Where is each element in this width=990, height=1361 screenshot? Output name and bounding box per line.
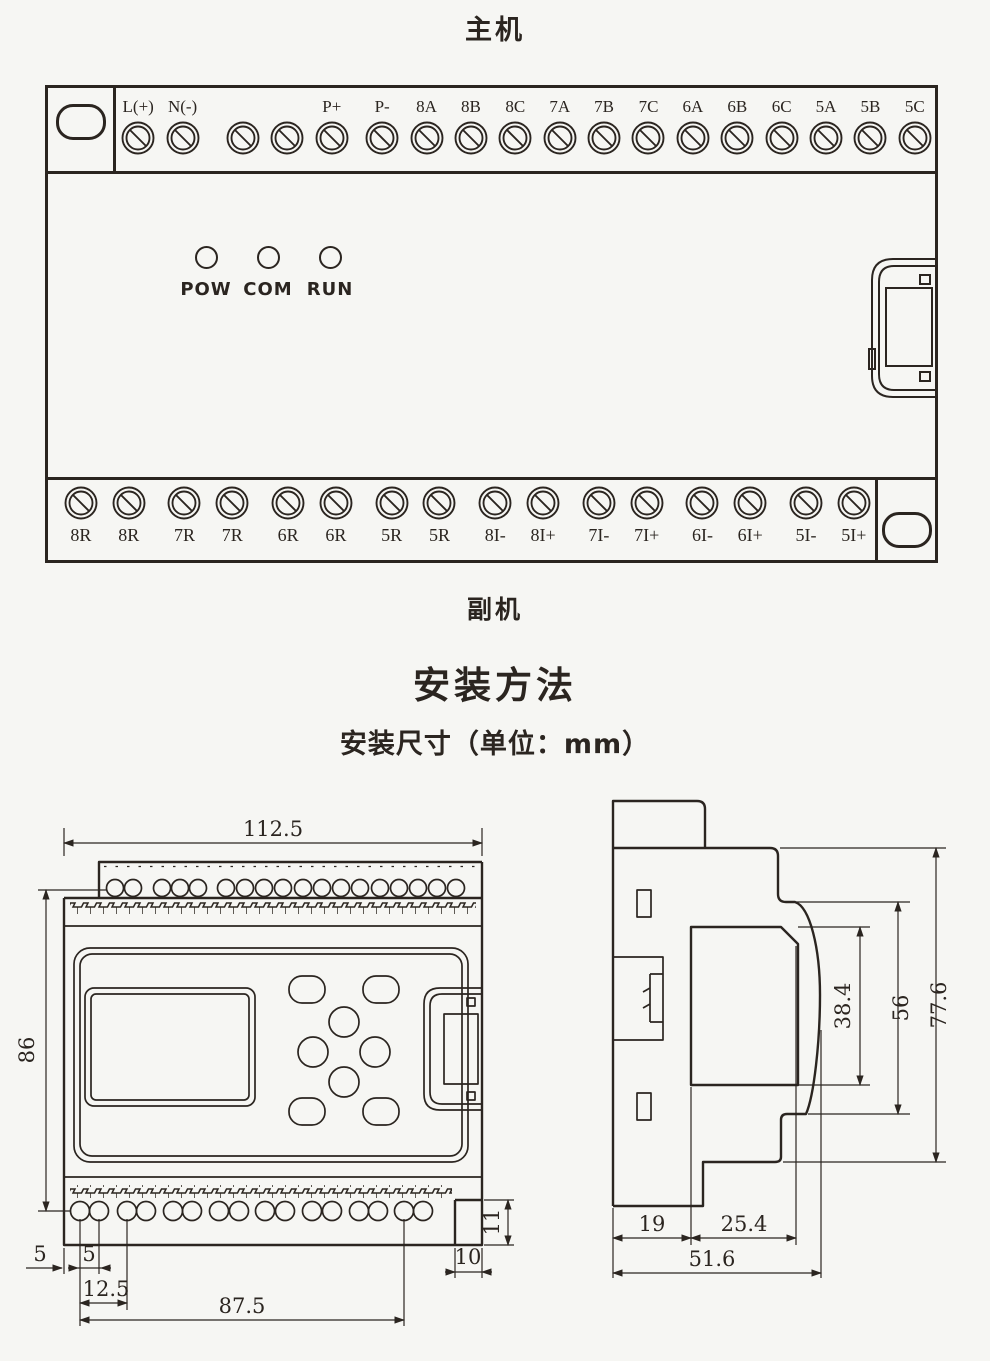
screw-terminal-icon: [318, 485, 354, 521]
led-pow-label: POW: [175, 279, 237, 300]
dim-notch-height: 11: [480, 1209, 504, 1236]
sub-unit-title: 副机: [0, 590, 990, 626]
terminal-top-6A: 6A: [671, 94, 715, 156]
bottom-terminal-strip: 8R8R7R7R6R6R5R5R8I-8I+7I-7I+6I-6I+5I-5I+: [48, 477, 935, 563]
terminal-label: 5A: [804, 94, 848, 120]
dim-hole-span: 87.5: [219, 1294, 266, 1318]
led-pow: POW: [175, 246, 237, 300]
screw-terminal-icon: [111, 485, 147, 521]
screw-terminal-icon: [542, 120, 578, 156]
terminal-label: 8I+: [519, 523, 567, 547]
top-terminal-row: L(+)N(-)P+P-8A8B8C7A7B7C6A6B6C5A5B5C: [116, 88, 935, 171]
terminal-label: P+: [310, 94, 354, 120]
terminal-bottom-8R: 8R: [57, 485, 105, 547]
terminal-bottom-6R: 6R: [264, 485, 312, 547]
screw-terminal-icon: [788, 485, 824, 521]
screw-terminal-icon: [732, 485, 768, 521]
terminal-label: 7B: [582, 94, 626, 120]
terminal-label: 6R: [312, 523, 360, 547]
terminal-label: 6B: [715, 94, 759, 120]
dim-hole-pitch: 5: [82, 1242, 95, 1266]
screw-terminal-icon: [852, 120, 888, 156]
screw-terminal-icon: [225, 120, 261, 156]
screw-terminal-icon: [675, 120, 711, 156]
screw-terminal-icon: [166, 485, 202, 521]
terminal-label: 8A: [404, 94, 448, 120]
terminal-label: 6A: [671, 94, 715, 120]
screw-terminal-icon: [630, 120, 666, 156]
terminal-bottom-5I-: 5I-: [782, 485, 830, 547]
screw-terminal-icon: [314, 120, 350, 156]
terminal-label: N(-): [160, 94, 204, 120]
led-run-icon: [319, 246, 342, 269]
terminal-bottom-8I+: 8I+: [519, 485, 567, 547]
terminal-label: 6I+: [726, 523, 774, 547]
screw-terminal-icon: [421, 485, 457, 521]
terminal-label: 5I-: [782, 523, 830, 547]
screw-terminal-icon: [214, 485, 250, 521]
screw-terminal-icon: [629, 485, 665, 521]
terminal-top-7B: 7B: [582, 94, 626, 156]
terminal-top-7C: 7C: [626, 94, 670, 156]
expansion-port-icon: [848, 254, 938, 402]
main-unit-title: 主机: [0, 8, 990, 47]
screw-terminal-icon: [764, 120, 800, 156]
terminal-bottom-7R: 7R: [208, 485, 256, 547]
terminal-top-L(+): L(+): [116, 94, 160, 156]
install-method-heading: 安装方法: [0, 655, 990, 709]
mounting-hole-top-left: [56, 104, 106, 140]
terminal-label: 5R: [416, 523, 464, 547]
terminal-bottom-7I+: 7I+: [623, 485, 671, 547]
terminal-top-8C: 8C: [493, 94, 537, 156]
screw-terminal-icon: [165, 120, 201, 156]
terminal-label: 6R: [264, 523, 312, 547]
terminal-bottom-5R: 5R: [368, 485, 416, 547]
terminal-label: 5C: [893, 94, 935, 120]
terminal-top-P+: P+: [310, 94, 354, 156]
terminal-label: 7I+: [623, 523, 671, 547]
screw-terminal-icon: [63, 485, 99, 521]
dim-overall-width: 112.5: [243, 817, 303, 841]
screw-terminal-icon: [120, 120, 156, 156]
terminal-label: 8C: [493, 94, 537, 120]
screw-terminal-icon: [453, 120, 489, 156]
screw-terminal-icon: [684, 485, 720, 521]
terminal-bottom-5I+: 5I+: [830, 485, 875, 547]
terminal-label: P-: [360, 94, 404, 120]
terminal-bottom-5R: 5R: [416, 485, 464, 547]
installation-drawings: 112.5 86: [0, 790, 990, 1355]
terminal-top-6B: 6B: [715, 94, 759, 156]
screw-terminal-icon: [269, 120, 305, 156]
screw-terminal-icon: [270, 485, 306, 521]
led-com-label: COM: [237, 279, 299, 300]
terminal-bottom-6I-: 6I-: [679, 485, 727, 547]
terminal-bottom-6R: 6R: [312, 485, 360, 547]
terminal-label: 5R: [368, 523, 416, 547]
screw-terminal-icon: [836, 485, 872, 521]
terminal-bottom-7I-: 7I-: [575, 485, 623, 547]
mounting-hole-bottom-right: [882, 512, 932, 548]
terminal-label: 5I+: [830, 523, 875, 547]
dim-body-height: 56: [889, 995, 913, 1022]
dim-front-depth: 25.4: [721, 1212, 768, 1236]
terminal-top-7A: 7A: [538, 94, 582, 156]
dim-window-height: 38.4: [831, 983, 855, 1030]
screw-terminal-icon: [719, 120, 755, 156]
terminal-label: [221, 94, 265, 120]
led-indicator-row: POW COM RUN: [175, 246, 361, 300]
screw-terminal-icon: [374, 485, 410, 521]
screw-terminal-icon: [586, 120, 622, 156]
side-view-drawing: 38.4 56 77.6 19 25.4 51.6: [598, 790, 990, 1310]
terminal-top-6C: 6C: [759, 94, 803, 156]
front-view-drawing: 112.5 86: [12, 798, 532, 1350]
terminal-top-N(-): N(-): [160, 94, 204, 156]
terminal-label: 8R: [57, 523, 105, 547]
terminal-label: 8B: [449, 94, 493, 120]
dim-hole-pitch-double: 12.5: [83, 1277, 130, 1301]
led-run: RUN: [299, 246, 361, 300]
terminal-label: 7R: [161, 523, 209, 547]
screw-terminal-icon: [808, 120, 844, 156]
led-pow-icon: [195, 246, 218, 269]
top-terminal-strip: L(+)N(-)P+P-8A8B8C7A7B7C6A6B6C5A5B5C: [48, 88, 935, 174]
terminal-bottom-6I+: 6I+: [726, 485, 774, 547]
manual-page: { "titles": { "main_unit": "主机", "sub_un…: [0, 0, 990, 1361]
dim-hole-row-spacing: 86: [15, 1037, 39, 1064]
terminal-top-5C: 5C: [893, 94, 935, 156]
dim-base-depth: 19: [639, 1212, 666, 1236]
dim-edge-to-hole: 5: [33, 1242, 46, 1266]
terminal-top-5B: 5B: [848, 94, 892, 156]
terminal-label: 8R: [105, 523, 153, 547]
dim-total-height: 77.6: [927, 982, 951, 1029]
screw-terminal-icon: [497, 120, 533, 156]
terminal-top-8A: 8A: [404, 94, 448, 156]
device-front-panel: POW COM RUN: [48, 174, 935, 477]
terminal-label: 6I-: [679, 523, 727, 547]
terminal-top-blank: [265, 94, 309, 156]
mounting-slot-cell-bottom-right: [875, 480, 935, 563]
screw-terminal-icon: [409, 120, 445, 156]
terminal-top-P-: P-: [360, 94, 404, 156]
screw-terminal-icon: [477, 485, 513, 521]
install-size-subheading: 安装尺寸（单位：mm）: [0, 722, 990, 761]
screw-terminal-icon: [364, 120, 400, 156]
dim-total-depth: 51.6: [689, 1247, 736, 1271]
terminal-label: 7A: [538, 94, 582, 120]
terminal-bottom-7R: 7R: [161, 485, 209, 547]
terminal-label: [265, 94, 309, 120]
terminal-label: L(+): [116, 94, 160, 120]
terminal-label: 5B: [848, 94, 892, 120]
terminal-label: 7R: [208, 523, 256, 547]
screw-terminal-icon: [525, 485, 561, 521]
terminal-top-blank: [221, 94, 265, 156]
screw-terminal-icon: [581, 485, 617, 521]
terminal-label: 7C: [626, 94, 670, 120]
terminal-label: 7I-: [575, 523, 623, 547]
led-com-icon: [257, 246, 280, 269]
terminal-label: 6C: [759, 94, 803, 120]
controller-device-diagram: L(+)N(-)P+P-8A8B8C7A7B7C6A6B6C5A5B5C POW…: [45, 85, 938, 563]
dim-notch-width: 10: [455, 1245, 482, 1269]
led-run-label: RUN: [299, 279, 361, 300]
terminal-label: 8I-: [471, 523, 519, 547]
mounting-slot-cell-top-left: [48, 88, 116, 171]
led-com: COM: [237, 246, 299, 300]
terminal-bottom-8R: 8R: [105, 485, 153, 547]
terminal-top-5A: 5A: [804, 94, 848, 156]
terminal-bottom-8I-: 8I-: [471, 485, 519, 547]
screw-terminal-icon: [897, 120, 933, 156]
terminal-top-8B: 8B: [449, 94, 493, 156]
bottom-terminal-row: 8R8R7R7R6R6R5R5R8I-8I+7I-7I+6I-6I+5I-5I+: [48, 480, 875, 563]
